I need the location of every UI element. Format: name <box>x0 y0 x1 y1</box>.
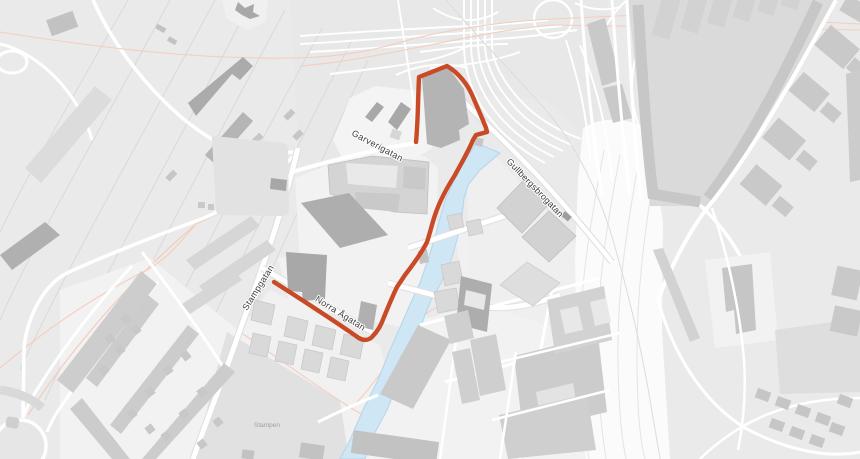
svg-text:Stampen: Stampen <box>254 422 280 429</box>
